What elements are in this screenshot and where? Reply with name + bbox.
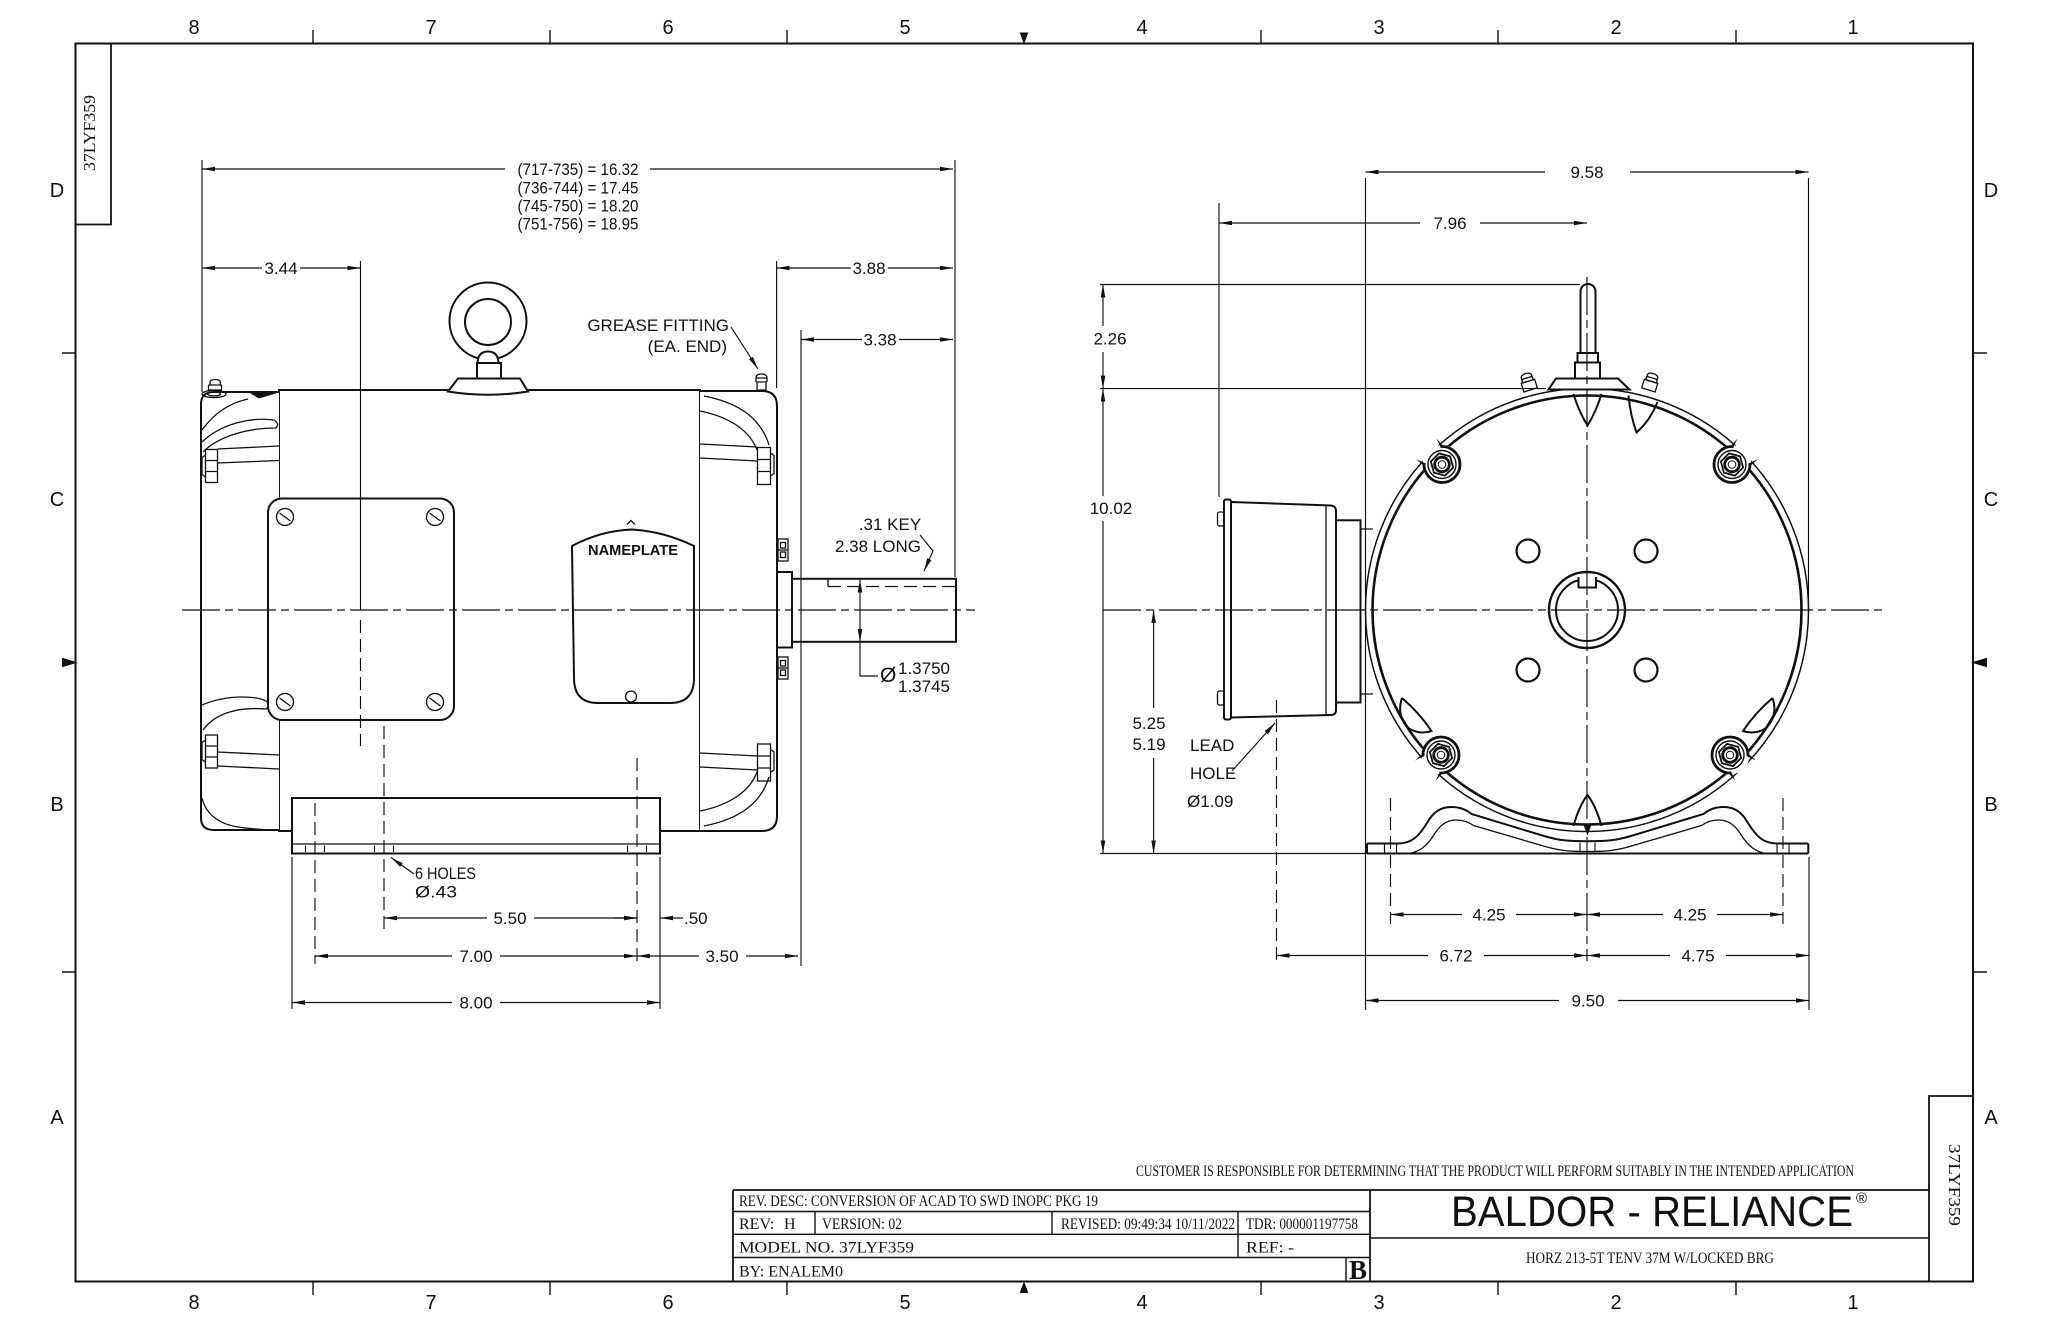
svg-text:REV. DESC: CONVERSION OF ACAD: REV. DESC: CONVERSION OF ACAD TO SWD INO…: [739, 1193, 1098, 1210]
svg-text:.31 KEY: .31 KEY: [859, 515, 921, 534]
svg-text:B: B: [1349, 1255, 1367, 1285]
svg-text:6.72: 6.72: [1439, 947, 1472, 966]
svg-text:5.25: 5.25: [1132, 714, 1165, 733]
svg-text:9.50: 9.50: [1571, 992, 1604, 1011]
svg-text:5.50: 5.50: [493, 909, 526, 928]
svg-text:7: 7: [425, 1292, 436, 1314]
svg-text:(745-750) = 18.20: (745-750) = 18.20: [518, 197, 639, 216]
svg-text:BALDOR - RELIANCE: BALDOR - RELIANCE: [1451, 1188, 1853, 1236]
svg-text:HORZ 213-5T TENV 37M W/LOCKED: HORZ 213-5T TENV 37M W/LOCKED BRG: [1526, 1250, 1774, 1267]
svg-text:®: ®: [1856, 1190, 1867, 1207]
svg-text:4: 4: [1136, 1292, 1147, 1314]
svg-text:7: 7: [425, 17, 436, 39]
svg-text:6: 6: [662, 17, 673, 39]
svg-text:1: 1: [1847, 1292, 1858, 1314]
svg-text:3.44: 3.44: [264, 259, 297, 278]
svg-text:VERSION: 02: VERSION: 02: [822, 1216, 902, 1233]
svg-text:CUSTOMER IS RESPONSIBLE FOR DE: CUSTOMER IS RESPONSIBLE FOR DETERMINING …: [1136, 1163, 1854, 1180]
svg-text:REVISED: 09:49:34 10/11/2022: REVISED: 09:49:34 10/11/2022: [1061, 1216, 1235, 1233]
svg-text:37LYF359: 37LYF359: [80, 95, 99, 171]
svg-text:(EA. END): (EA. END): [648, 337, 727, 356]
svg-text:3.88: 3.88: [852, 259, 885, 278]
svg-text:2.38 LONG: 2.38 LONG: [835, 537, 921, 556]
svg-text:A: A: [1984, 1107, 1998, 1129]
svg-text:6 HOLES: 6 HOLES: [415, 864, 476, 883]
svg-text:BY: ENALEM0: BY: ENALEM0: [739, 1264, 843, 1281]
svg-text:1: 1: [1847, 17, 1858, 39]
svg-text:1.3745: 1.3745: [898, 677, 950, 696]
svg-text:3.38: 3.38: [863, 331, 896, 350]
svg-text:TDR: 000001197758: TDR: 000001197758: [1246, 1216, 1358, 1233]
svg-text:3.50: 3.50: [705, 947, 738, 966]
svg-text:Ø.43: Ø.43: [415, 883, 457, 902]
svg-text:B: B: [50, 794, 63, 816]
svg-text:(751-756) = 18.95: (751-756) = 18.95: [518, 215, 639, 234]
svg-text:5: 5: [899, 1292, 910, 1314]
svg-text:3: 3: [1373, 1292, 1384, 1314]
svg-text:2: 2: [1610, 1292, 1621, 1314]
svg-text:4.25: 4.25: [1673, 906, 1706, 925]
svg-text:Ø: Ø: [880, 664, 896, 687]
svg-text:8: 8: [188, 17, 199, 39]
svg-text:5: 5: [899, 17, 910, 39]
svg-text:5.19: 5.19: [1132, 735, 1165, 754]
svg-text:REV:: REV:: [739, 1216, 774, 1233]
svg-text:8.00: 8.00: [459, 994, 492, 1013]
svg-text:GREASE FITTING: GREASE FITTING: [587, 316, 729, 335]
svg-text:10.02: 10.02: [1090, 499, 1133, 518]
svg-text:Ø1.09: Ø1.09: [1187, 792, 1233, 811]
svg-text:2.26: 2.26: [1093, 330, 1126, 349]
svg-text:4.75: 4.75: [1681, 947, 1714, 966]
svg-text:NAMEPLATE: NAMEPLATE: [588, 542, 678, 559]
svg-text:4.25: 4.25: [1472, 906, 1505, 925]
svg-text:LEAD: LEAD: [1190, 736, 1234, 755]
svg-text:7.96: 7.96: [1433, 214, 1466, 233]
svg-text:(736-744) = 17.45: (736-744) = 17.45: [518, 179, 639, 198]
svg-text:REF: -: REF: -: [1246, 1240, 1294, 1257]
svg-text:MODEL NO. 37LYF359: MODEL NO. 37LYF359: [739, 1240, 914, 1257]
svg-text:C: C: [1984, 489, 1998, 511]
svg-text:4: 4: [1136, 17, 1147, 39]
svg-text:D: D: [1984, 180, 1998, 202]
svg-text:B: B: [1984, 794, 1997, 816]
svg-text:HOLE: HOLE: [1190, 764, 1236, 783]
svg-text:H: H: [784, 1216, 796, 1233]
svg-text:3: 3: [1373, 17, 1384, 39]
svg-text:9.58: 9.58: [1570, 163, 1603, 182]
svg-text:7.00: 7.00: [459, 947, 492, 966]
svg-text:.50: .50: [684, 909, 708, 928]
svg-text:8: 8: [188, 1292, 199, 1314]
svg-text:C: C: [50, 489, 64, 511]
svg-text:(717-735) = 16.32: (717-735) = 16.32: [518, 160, 639, 179]
svg-text:D: D: [50, 180, 64, 202]
svg-text:A: A: [50, 1107, 64, 1129]
svg-text:1.3750: 1.3750: [898, 659, 950, 678]
svg-text:6: 6: [662, 1292, 673, 1314]
svg-text:37LYF359: 37LYF359: [1945, 1144, 1964, 1226]
svg-text:2: 2: [1610, 17, 1621, 39]
